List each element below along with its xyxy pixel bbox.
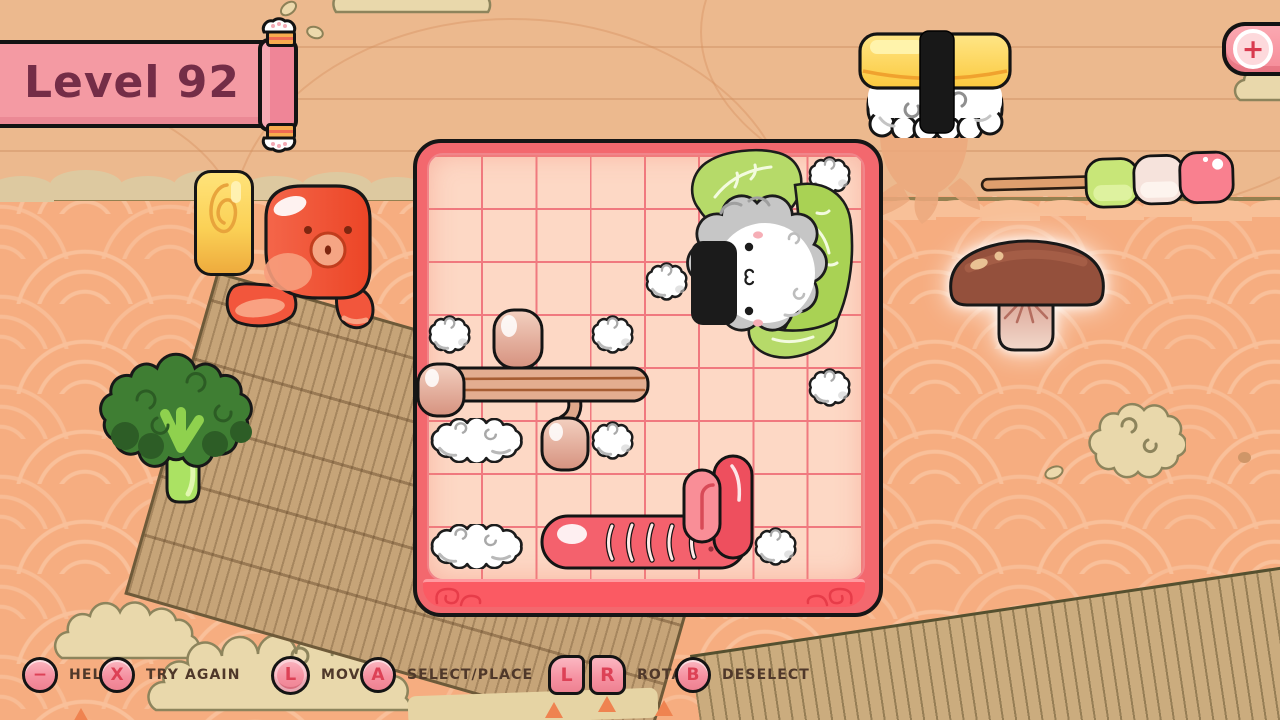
level-label: Level 92 xyxy=(24,57,240,112)
rice-puff-piece[interactable] xyxy=(644,259,689,304)
decor-triangle xyxy=(598,696,616,712)
l-shoulder-icon: L xyxy=(548,655,585,695)
shiitake-mushroom-icon xyxy=(943,228,1111,354)
cloud-scallop xyxy=(50,170,122,200)
add-button[interactable]: + xyxy=(1222,22,1280,76)
a-button-icon: A xyxy=(360,657,396,693)
cloud-scallop xyxy=(118,176,178,200)
level-banner-paper: Level 92 xyxy=(0,40,272,128)
rice-puff-piece[interactable] xyxy=(427,524,527,569)
select-place-label: SELECT/PLACE xyxy=(407,667,533,683)
dango-skewer-piece[interactable] xyxy=(979,147,1235,214)
wave-bump xyxy=(1250,200,1280,217)
minus-button-icon: − xyxy=(22,657,58,693)
try-again-label: TRY AGAIN xyxy=(146,667,241,683)
control-select-place: A SELECT/PLACE xyxy=(360,655,533,695)
control-try-again: X TRY AGAIN xyxy=(99,655,241,695)
deselect-label: DESELECT xyxy=(722,667,810,683)
paw-decoration xyxy=(261,136,297,160)
shiitake-mushroom-piece-selected[interactable] xyxy=(943,228,1111,358)
control-hint-bar: − HELP X TRY AGAIN L MOVE A SELECT/PLACE… xyxy=(0,655,1280,697)
control-deselect: B DESELECT xyxy=(675,655,810,695)
r-shoulder-icon: R xyxy=(589,655,626,695)
level-banner: Level 92 xyxy=(0,24,300,140)
octopus-piece[interactable] xyxy=(222,178,380,336)
decor-triangle xyxy=(655,700,673,716)
tray-swirl-decoration xyxy=(431,583,501,607)
broccoli-piece[interactable] xyxy=(95,342,267,510)
control-move: L MOVE xyxy=(271,655,371,695)
decor-triangle xyxy=(72,708,90,720)
decor-triangle xyxy=(545,702,563,718)
crumb-dot xyxy=(1238,452,1251,463)
x-button-icon: X xyxy=(99,657,135,693)
paw-decoration xyxy=(261,10,297,34)
level-banner-roll xyxy=(258,38,298,132)
board-tray xyxy=(423,579,865,607)
left-stick-icon: L xyxy=(271,656,310,695)
rice-puff-piece[interactable] xyxy=(807,365,852,410)
shrimp-piece[interactable] xyxy=(532,448,760,574)
plus-icon: + xyxy=(1233,29,1273,69)
tamago-nigiri-piece[interactable] xyxy=(856,30,1014,138)
game-screen: Level 92 + xyxy=(0,0,1280,720)
tray-swirl-decoration xyxy=(787,583,857,607)
cloud-doodle xyxy=(328,0,538,14)
cloud-scallop xyxy=(0,176,54,202)
onigiri-cabbage-piece[interactable] xyxy=(685,143,857,365)
cloud-doodle xyxy=(1082,392,1186,484)
b-button-icon: B xyxy=(675,657,711,693)
